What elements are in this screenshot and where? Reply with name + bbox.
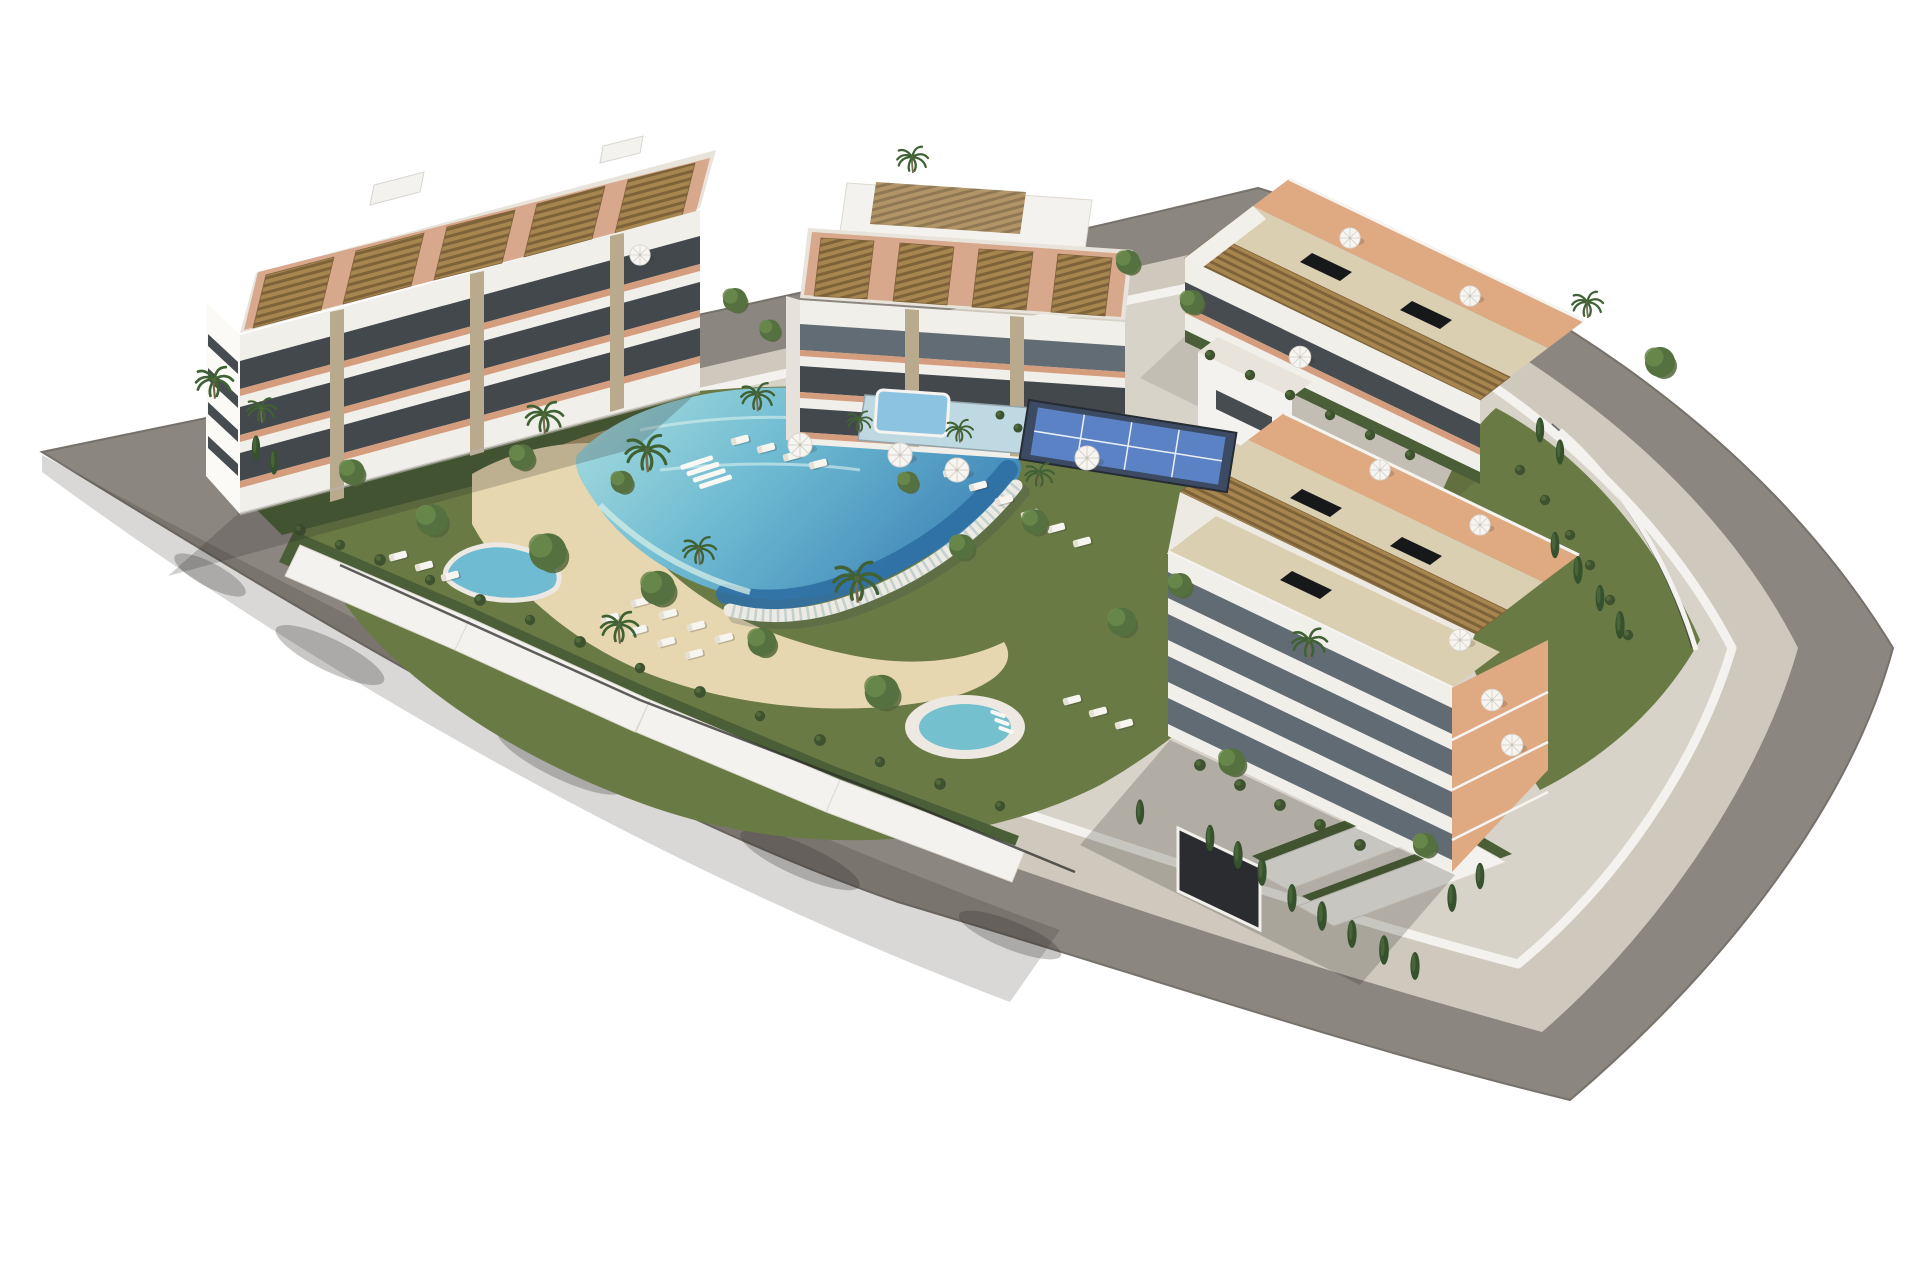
cypress [1287, 884, 1296, 912]
shrub [635, 663, 645, 673]
cypress [1347, 920, 1356, 948]
cypress [270, 449, 278, 474]
shrub [875, 757, 885, 767]
shrub [1013, 423, 1022, 432]
cypress [1447, 884, 1456, 912]
shrub [755, 711, 765, 721]
cypress [1556, 439, 1564, 464]
cypress [1573, 556, 1582, 584]
shrub [995, 801, 1005, 811]
shrub [1540, 495, 1550, 505]
cypress [252, 435, 260, 460]
shrub [1194, 759, 1206, 771]
shrub [1274, 799, 1286, 811]
shrub [1325, 410, 1335, 420]
shrub [1205, 350, 1215, 360]
shrub [1515, 465, 1525, 475]
shrub [1405, 450, 1415, 460]
cypress [1536, 417, 1544, 442]
cypress [1476, 863, 1485, 890]
shrub [694, 686, 706, 698]
shrub [995, 410, 1004, 419]
shrub [374, 554, 386, 566]
shrub [525, 615, 535, 625]
cypress [1257, 858, 1266, 886]
cypress [1206, 825, 1215, 852]
shrub [1245, 370, 1255, 380]
shrub [335, 540, 345, 550]
render-canvas [0, 0, 1920, 1280]
shrub [1354, 839, 1366, 851]
cypress [1136, 799, 1144, 824]
end-facade [786, 296, 800, 444]
cypress [1551, 532, 1560, 559]
cypress [1379, 935, 1389, 964]
shrub [1585, 560, 1595, 570]
cypress [1233, 841, 1242, 869]
spa-pool [905, 695, 1025, 759]
shrub [1285, 390, 1295, 400]
shrub [425, 575, 435, 585]
cypress [1317, 901, 1327, 930]
shrub [574, 636, 586, 648]
shrub [1605, 595, 1615, 605]
shrub [1234, 779, 1246, 791]
shrub [1365, 430, 1375, 440]
cypress [1410, 952, 1419, 980]
kids-pool [875, 390, 950, 437]
shrub [934, 778, 946, 790]
cypress [1596, 585, 1605, 612]
shrub [1314, 819, 1326, 831]
shrub [814, 734, 826, 746]
shrub [1623, 630, 1633, 640]
shrub [474, 594, 486, 606]
shrub [1565, 530, 1575, 540]
